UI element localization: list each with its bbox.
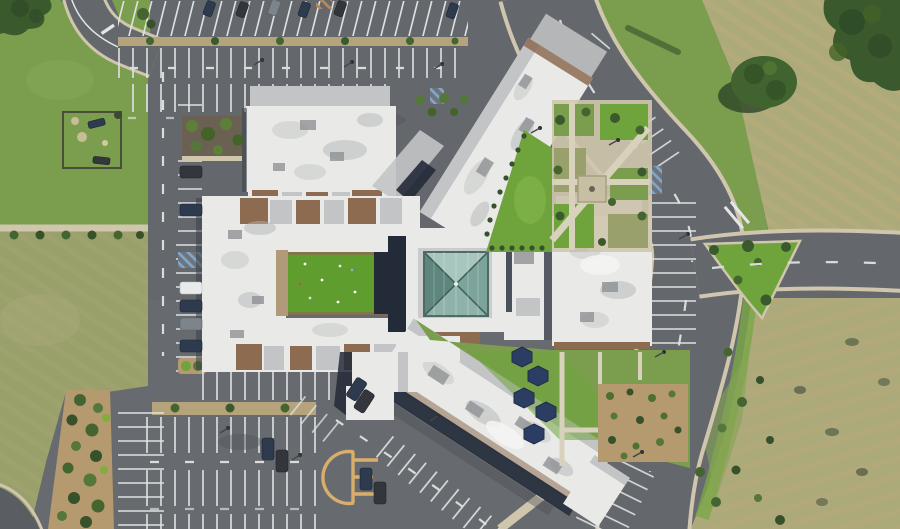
roadside-shrub <box>137 8 149 20</box>
north-block-west-shadow <box>242 108 247 192</box>
east-wing-south-edge <box>554 342 650 349</box>
courtyard-west-edge <box>276 250 288 316</box>
pyramid-apex <box>454 282 458 286</box>
grass-tone-patch <box>26 60 94 100</box>
grass-dry-patch <box>0 294 80 346</box>
stall-column-left <box>118 410 164 529</box>
stalls-east-column <box>652 196 696 344</box>
hatched-area-top <box>316 0 332 9</box>
stall-band-3 <box>145 470 328 506</box>
west-wing <box>196 196 420 372</box>
stall-row-2 <box>118 48 468 78</box>
stall-band-1 <box>200 372 330 400</box>
courtyard-turf <box>288 252 374 314</box>
pavement-stain-2 <box>218 434 262 450</box>
skylight-pyramid <box>424 252 488 316</box>
north-paver-plaza <box>614 112 640 138</box>
aerial-photo <box>0 0 900 529</box>
stall-row-angled <box>118 1 468 36</box>
west-stalls-north <box>178 92 202 116</box>
aerial-photo-stage <box>0 0 900 529</box>
tower-west-shadow <box>388 236 406 332</box>
west-planting-bed <box>182 116 244 161</box>
stall-band-4 <box>145 514 328 529</box>
parking-median <box>118 37 468 46</box>
central-tower <box>388 228 504 346</box>
